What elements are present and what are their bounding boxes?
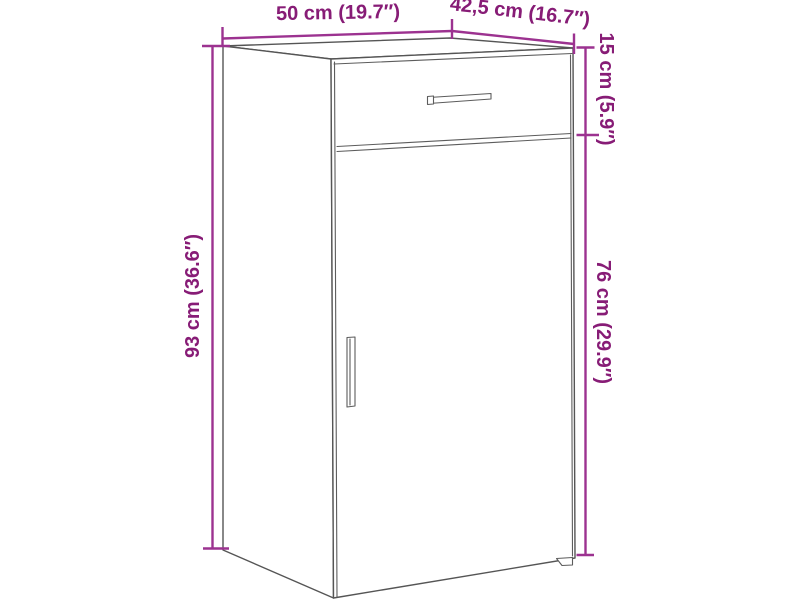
cabinet-foot	[557, 558, 573, 566]
cabinet-front-panel	[331, 48, 575, 598]
width-dimension-line	[223, 31, 452, 39]
door-handle	[347, 337, 355, 407]
cabinet-left-panel	[223, 46, 334, 598]
cabinet-line-drawing	[0, 0, 800, 600]
door-dimension-label: 76 cm (29.9″)	[593, 260, 613, 384]
height-dimension-label: 93 cm (36.6″)	[183, 234, 203, 358]
dimension-diagram: 50 cm (19.7″) 42,5 cm (16.7″) 93 cm (36.…	[0, 0, 800, 600]
drawer-dimension-label: 15 cm (5.9″)	[596, 33, 616, 146]
width-dimension-label: 50 cm (19.7″)	[276, 2, 400, 24]
drawer-handle-cap	[428, 96, 434, 105]
cabinet	[223, 38, 575, 598]
